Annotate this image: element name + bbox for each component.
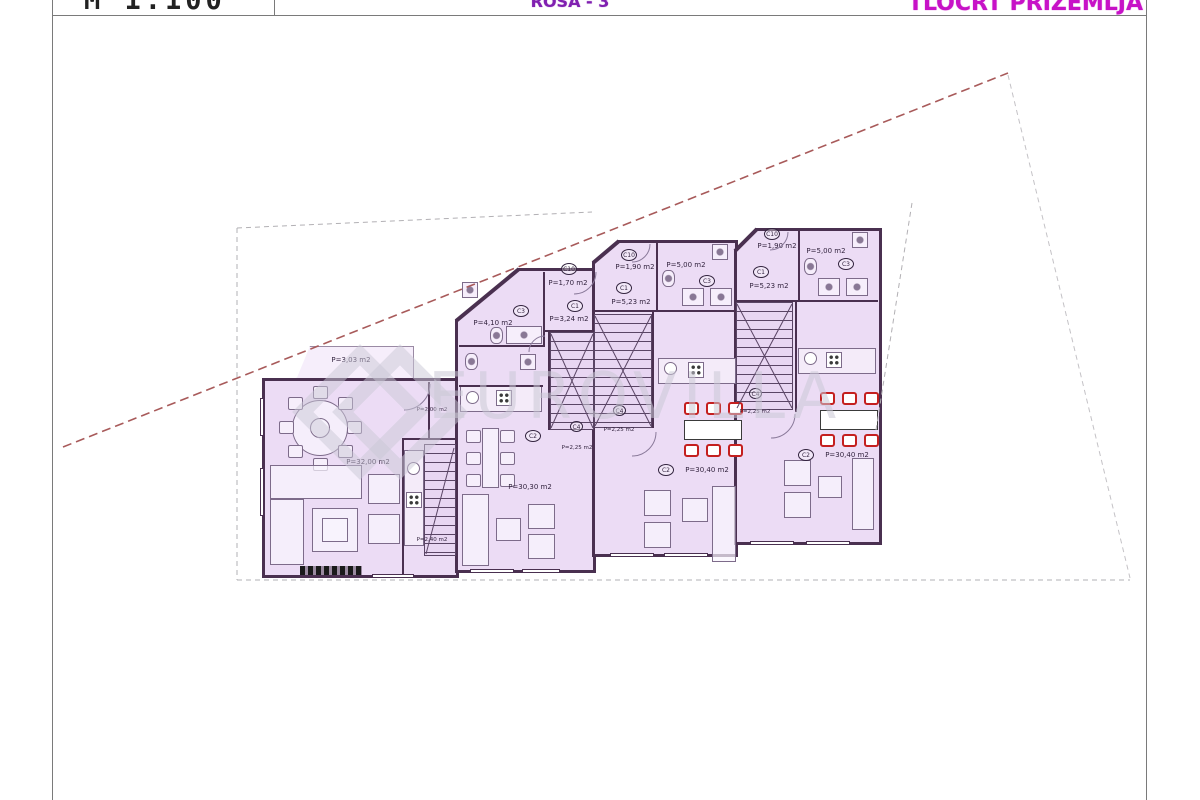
sheet-title: TLOCRT PRIZEMLJA	[840, 0, 1143, 16]
scale-label: M 1:100	[84, 0, 226, 16]
project-label: ROSA - 3	[500, 0, 640, 11]
floor-plan-sheet: M 1:100 ROSA - 3 TLOCRT PRIZEMLJA P=3,03…	[0, 0, 1200, 800]
watermark-text: EUROVILLA	[428, 360, 842, 434]
